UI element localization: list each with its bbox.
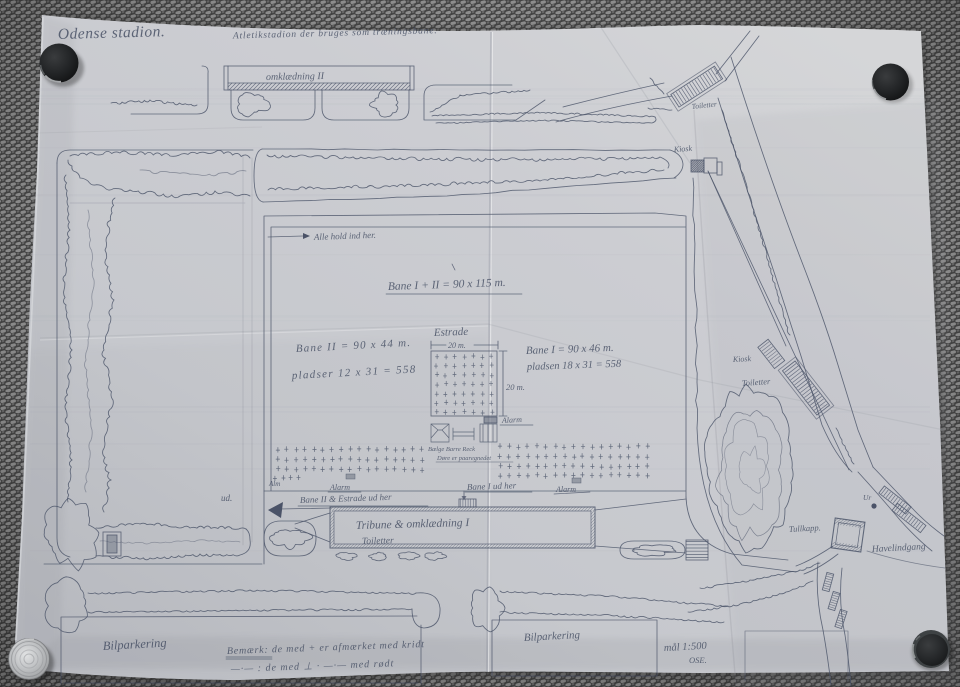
svg-text:omklædning II: omklædning II (266, 71, 325, 83)
svg-text:Tullkapp.: Tullkapp. (789, 522, 821, 534)
svg-text:Døre er paaregnedet: Døre er paaregnedet (436, 455, 491, 462)
svg-text:Kiosk: Kiosk (732, 354, 752, 364)
svg-text:Odense stadion.: Odense stadion. (58, 23, 166, 43)
svg-text:Estrade: Estrade (433, 326, 469, 339)
svg-text:ud.: ud. (221, 493, 232, 503)
svg-text:mål 1:500: mål 1:500 (664, 641, 708, 654)
svg-text:Ur: Ur (863, 493, 871, 502)
svg-text:Alarm: Alarm (501, 415, 523, 425)
svg-text:Bane I ud her: Bane I ud her (467, 480, 517, 492)
svg-text:Kiosk: Kiosk (673, 144, 693, 154)
svg-text:Toiletter: Toiletter (362, 536, 394, 547)
svg-text:Alarm: Alarm (329, 483, 350, 492)
svg-text:Bælge Barre Reck: Bælge Barre Reck (428, 446, 475, 453)
svg-text:Toiletter: Toiletter (741, 376, 771, 388)
svg-text:Alm: Alm (268, 480, 280, 488)
svg-text:OSE.: OSE. (689, 655, 707, 665)
svg-text:20 m.: 20 m. (506, 382, 525, 392)
svg-text:20 m.: 20 m. (448, 341, 466, 350)
